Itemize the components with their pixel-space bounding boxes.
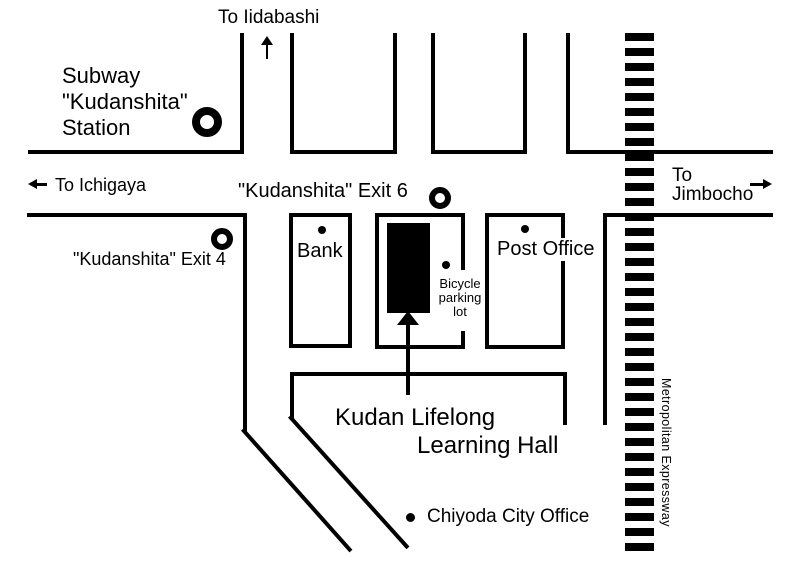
- exit6-circle-icon: [429, 187, 451, 209]
- north-block3-left-edge: [566, 33, 570, 154]
- chiyoda-city-office-dot-icon: [406, 513, 415, 522]
- to-jimbocho-line1: To: [672, 165, 692, 186]
- north-block2-left-edge: [431, 33, 435, 154]
- subway-station-line2: "Kudanshita": [62, 89, 188, 114]
- road-upper-edge-block1: [290, 150, 397, 154]
- hall-block-right-edge-lower: [461, 331, 465, 349]
- iidabashi-street-right-edge: [290, 33, 294, 154]
- subway-station-label: Subway "Kudanshita" Station: [62, 63, 188, 141]
- station-circle-icon: [192, 107, 222, 137]
- road-upper-edge-west: [28, 150, 244, 154]
- to-iidabashi-label: To Iidabashi: [218, 7, 319, 29]
- destination-name-line1: Kudan Lifelong: [335, 404, 495, 432]
- to-jimbocho-label: To Jimbocho: [672, 166, 753, 204]
- hall-block-left-edge: [375, 213, 379, 349]
- post-office-building: [485, 213, 565, 349]
- hall-block-top-edge: [375, 213, 465, 217]
- destination-name-line2: Learning Hall: [417, 432, 558, 460]
- exit4-circle-icon: [211, 228, 233, 250]
- bicycle-parking-line2: parking: [439, 290, 482, 305]
- bicycle-parking-label: Bicycle parking lot: [432, 277, 488, 319]
- post-office-dot-icon: [521, 225, 529, 233]
- to-ichigaya-label: To Ichigaya: [55, 175, 146, 196]
- to-jimbocho-line2: Jimbocho: [672, 184, 753, 205]
- subway-station-line3: Station: [62, 115, 131, 140]
- bicycle-parking-line3: lot: [453, 304, 467, 319]
- post-office-label: Post Office: [497, 238, 594, 261]
- learning-hall-building: [387, 223, 430, 313]
- south-block-right-edge: [563, 372, 567, 425]
- road-upper-edge-east: [566, 150, 773, 154]
- south-block-left-edge: [290, 372, 294, 419]
- bicycle-parking-dot-icon: [442, 261, 450, 269]
- exit6-label: "Kudanshita" Exit 6: [238, 180, 408, 203]
- bank-label: Bank: [297, 240, 343, 263]
- road-lower-edge-east: [603, 213, 773, 217]
- exit4-street-vertical: [243, 213, 247, 432]
- chiyoda-city-office-label: Chiyoda City Office: [427, 506, 589, 528]
- south-block-diagonal: [288, 415, 409, 549]
- expressway-label: Metropolitan Expressway: [659, 378, 673, 527]
- hall-block-bottom-edge: [375, 345, 465, 349]
- bicycle-parking-line1: Bicycle: [439, 276, 480, 291]
- iidabashi-street-left-edge: [240, 33, 244, 154]
- exit4-label: "Kudanshita" Exit 4: [73, 249, 226, 270]
- north-block2-right-edge: [523, 33, 527, 154]
- road-lower-edge-west: [27, 213, 247, 217]
- kudanshita-area-map: Bank Bicycle parking lot Post Office To …: [0, 0, 800, 587]
- exit4-street-diagonal: [241, 428, 352, 552]
- subway-station-line1: Subway: [62, 63, 140, 88]
- south-block-top-edge: [290, 372, 567, 376]
- bank-dot-icon: [318, 226, 326, 234]
- east-street-vertical: [603, 213, 607, 425]
- hall-block-right-edge-upper: [461, 213, 465, 270]
- road-upper-edge-block2: [431, 150, 527, 154]
- north-block1-right-edge: [393, 33, 397, 154]
- expressway-dashed-strip: [625, 33, 654, 554]
